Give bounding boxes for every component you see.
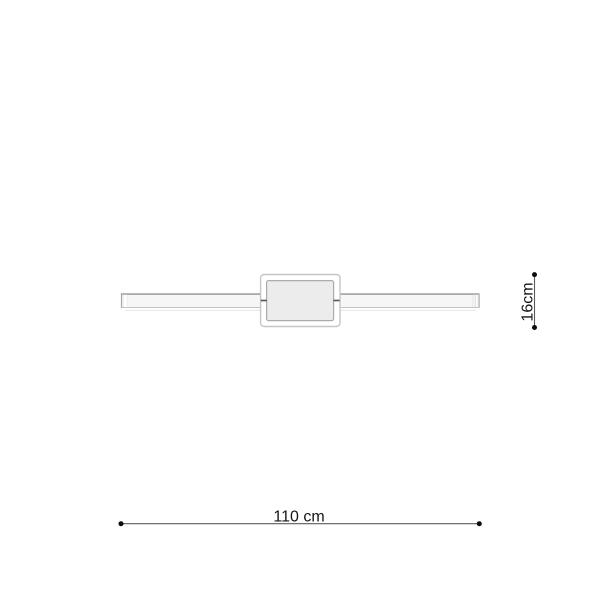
svg-text:110 cm: 110 cm — [273, 509, 324, 526]
svg-text:16cm: 16cm — [519, 282, 536, 321]
